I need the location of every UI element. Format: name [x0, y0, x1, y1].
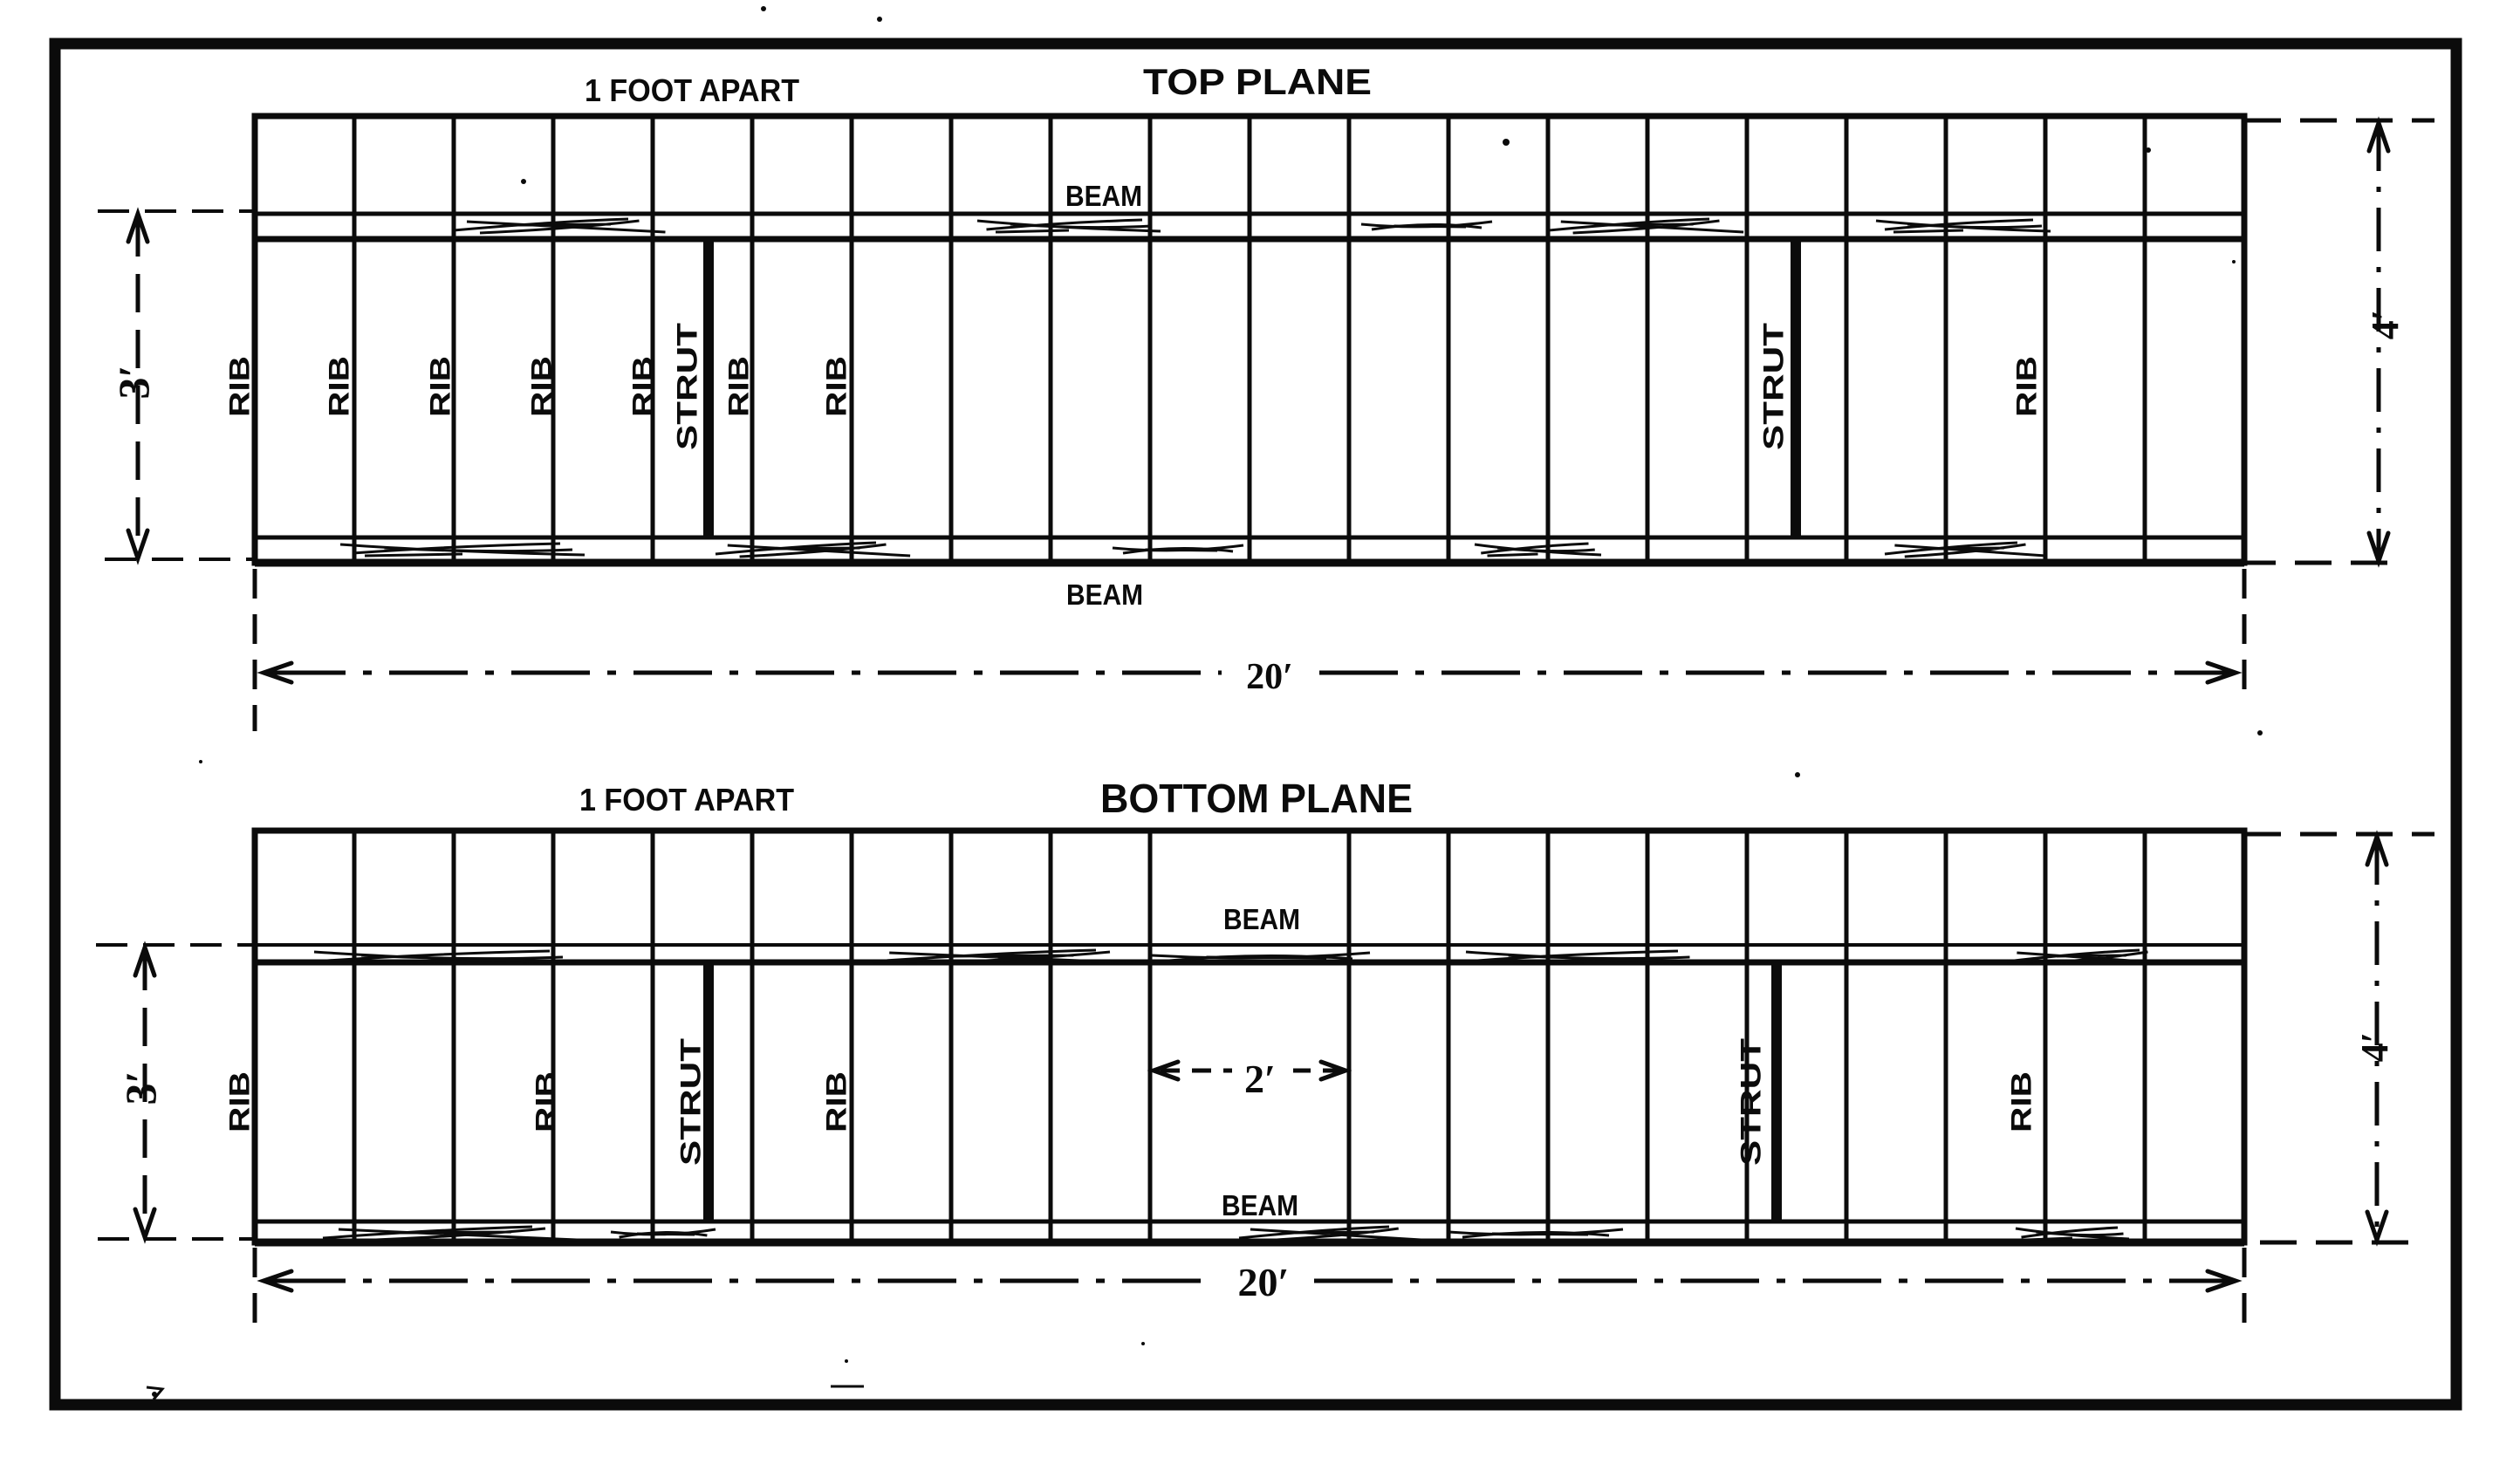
svg-text:RIB: RIB: [425, 356, 456, 417]
svg-text:RIB: RIB: [531, 1071, 562, 1132]
svg-text:RIB: RIB: [2011, 356, 2043, 417]
svg-text:STRUT: STRUT: [672, 322, 703, 450]
svg-text:RIB: RIB: [2006, 1071, 2037, 1132]
svg-text:RIB: RIB: [224, 1071, 256, 1132]
svg-text:BOTTOM PLANE: BOTTOM PLANE: [1100, 776, 1413, 821]
svg-text:STRUT: STRUT: [675, 1037, 707, 1166]
svg-text:TOP PLANE: TOP PLANE: [1143, 61, 1372, 102]
svg-text:RIB: RIB: [723, 356, 755, 417]
svg-text:BEAM: BEAM: [1222, 1189, 1298, 1221]
svg-text:4′: 4′: [2353, 1032, 2396, 1062]
svg-text:2′: 2′: [1244, 1057, 1276, 1101]
svg-text:BEAM: BEAM: [1065, 180, 1142, 212]
svg-text:3′: 3′: [109, 365, 158, 399]
svg-text:20′: 20′: [1238, 1260, 1290, 1304]
svg-text:20′: 20′: [1246, 657, 1293, 697]
svg-text:BEAM: BEAM: [1223, 903, 1300, 935]
svg-text:RIB: RIB: [821, 356, 853, 417]
svg-text:1 FOOT APART: 1 FOOT APART: [585, 72, 799, 108]
svg-text:RIB: RIB: [224, 356, 256, 417]
svg-text:RIB: RIB: [526, 356, 558, 417]
svg-text:1 FOOT APART: 1 FOOT APART: [579, 782, 794, 818]
svg-text:STRUT: STRUT: [1736, 1037, 1767, 1166]
svg-text:RIB: RIB: [821, 1071, 853, 1132]
svg-text:RIB: RIB: [324, 356, 355, 417]
svg-text:RIB: RIB: [627, 356, 659, 417]
svg-text:4′: 4′: [2364, 310, 2407, 339]
svg-text:3′: 3′: [116, 1071, 165, 1105]
svg-text:BEAM: BEAM: [1066, 578, 1143, 611]
svg-text:STRUT: STRUT: [1758, 322, 1790, 450]
